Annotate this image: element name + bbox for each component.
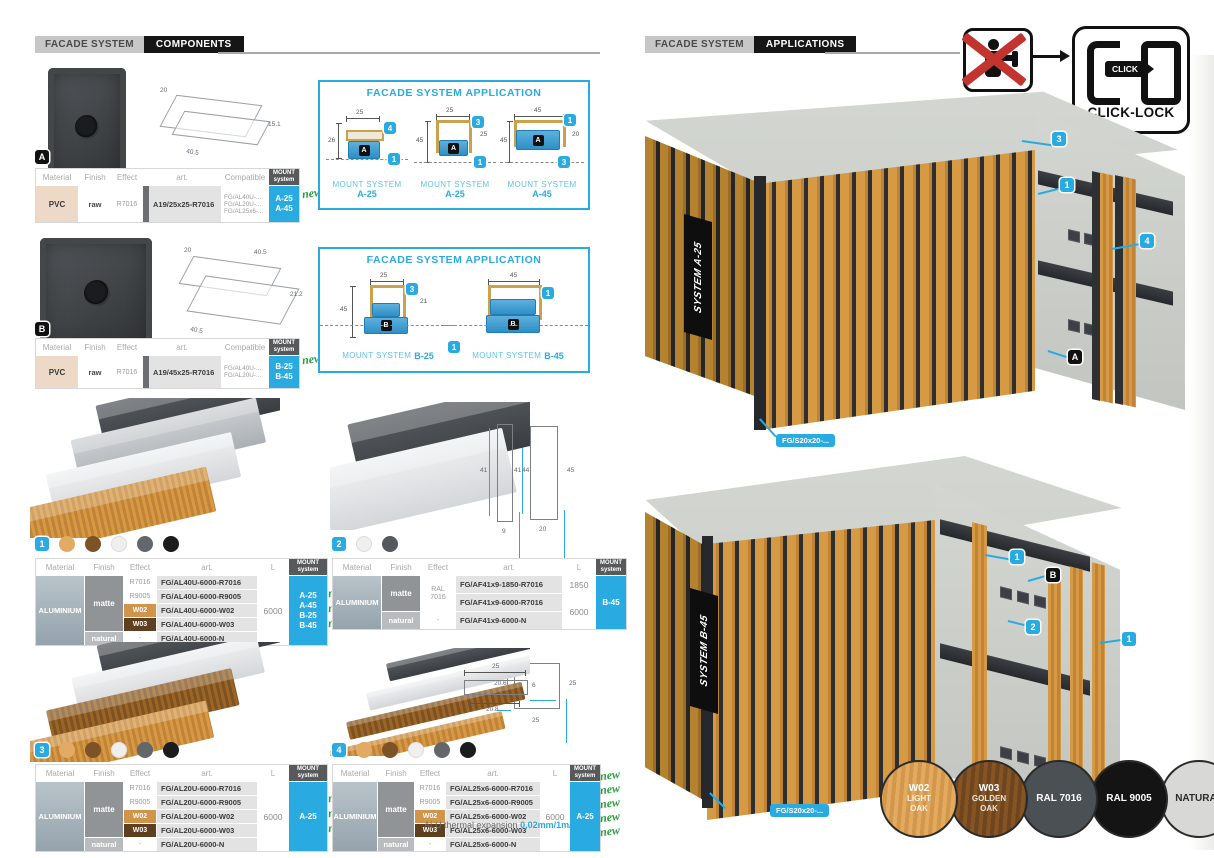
cell-material: PVC — [36, 186, 78, 222]
cell-effect: R7016 — [124, 576, 156, 589]
cell-length: 1850 — [563, 576, 595, 593]
mount-block: B — [486, 315, 540, 333]
cell-art: A19/25x25-R7016 — [143, 186, 221, 222]
color-swatch-row: W02 LIGHT OAK W03 GOLDEN OAK RAL 7016 RA… — [880, 760, 1214, 838]
cell-mount: A-25A-45 B-25B-45 — [289, 576, 327, 645]
dim-width: 20 — [539, 527, 546, 534]
color-dot — [85, 536, 101, 552]
application-render-a25: SYSTEM A-25 3 1 4 A FG/S20x20-... — [640, 88, 1200, 452]
system-plaque-label: SYSTEM B-45 — [699, 614, 710, 688]
appA-drawing-2: 25 45 25 3 A 1 — [414, 108, 496, 180]
mount-block-upper — [372, 303, 400, 317]
profile-outline — [464, 680, 528, 695]
color-dot — [356, 536, 372, 552]
col-length: L — [258, 765, 288, 781]
component-b-dim-h: 21.2 — [290, 292, 303, 299]
dim-right: 25 — [480, 132, 487, 139]
dim-left: 45 — [500, 138, 507, 145]
col-art: art. — [446, 765, 540, 781]
col-material: Material — [36, 765, 84, 781]
dim-top: 45 — [534, 108, 541, 115]
dim-inner: 20.8 — [486, 707, 499, 714]
profile-1-table: Material Finish Effect art. L MOUNTsyste… — [35, 558, 328, 646]
dim-line — [470, 703, 520, 704]
cell-material: ALUMINIUM — [333, 782, 377, 851]
dim-right: 20 — [572, 132, 579, 139]
callout-badge: 3 — [406, 283, 418, 295]
cell-art: FG/AF41x9-6000-R7016 — [456, 594, 562, 611]
col-effect: Effect — [112, 169, 142, 185]
color-dot — [59, 536, 75, 552]
component-b-hole — [84, 280, 110, 306]
color-dot — [460, 742, 476, 758]
col-effect: Effect — [124, 765, 156, 781]
note-value: 0,02mm/1m/1°C — [520, 820, 587, 830]
col-finish: Finish — [382, 559, 420, 575]
cell-art: FG/AL20U-6000-N — [157, 838, 257, 851]
swatch-ral7016: RAL 7016 — [1020, 760, 1098, 838]
detached-slat-backing — [1115, 175, 1123, 405]
component-a-hole — [75, 115, 99, 139]
cell-effect: W02 — [124, 810, 156, 823]
cell-art: FG/AF41x9-6000-N — [456, 612, 562, 629]
cell-finish: raw — [79, 356, 111, 388]
cell-finish: raw — [79, 186, 111, 222]
col-material: Material — [333, 765, 377, 781]
mount-system-label: MOUNT SYSTEM — [414, 180, 496, 189]
col-effect: Effect — [415, 765, 445, 781]
component-b-dim-d2: 40.5 — [190, 327, 204, 336]
callout-badge: 4 — [384, 122, 396, 134]
component-b-dim-w: 20 — [184, 248, 191, 255]
color-dot — [163, 742, 179, 758]
color-dot — [111, 742, 127, 758]
dim-line — [488, 281, 540, 282]
mount-block: A — [439, 140, 468, 156]
drill-body — [1012, 51, 1018, 67]
profile-1-photo — [30, 398, 280, 538]
callout-badge: 1 — [1060, 178, 1074, 192]
cell-effect: - — [124, 838, 156, 851]
part-label: FG/S20x20-... — [776, 434, 835, 447]
cell-finish-natural: natural — [382, 612, 420, 629]
mount-system-code: A-25 — [326, 189, 408, 199]
callout-badge: 1 — [1010, 550, 1024, 564]
note-text: ALU thermal expansion — [424, 820, 520, 830]
swatch-w02: W02 LIGHT OAK — [880, 760, 958, 838]
cell-art: FG/AL20U-6000-R7016 — [157, 782, 257, 795]
profile-outline — [530, 426, 558, 520]
dim-line — [489, 428, 490, 516]
col-mount: MOUNTsystem — [269, 169, 299, 185]
col-mount: MOUNTsystem — [289, 765, 327, 781]
dim-left: 45 — [340, 307, 347, 314]
cell-mount: A-25 — [570, 782, 600, 851]
color-dot — [137, 536, 153, 552]
profile-4-drawing: 25 6 20.8 — [452, 668, 542, 724]
cell-finish-natural: natural — [85, 838, 123, 851]
component-b-letter-badge: B — [35, 322, 49, 336]
mount-system-code: A-45 — [500, 189, 584, 199]
col-material: Material — [36, 169, 78, 185]
cell-art: FG/AL20U-6000-R9005 — [157, 796, 257, 809]
callout-badge: 1 — [388, 153, 400, 165]
col-compatible: Compatible — [222, 169, 268, 185]
dim-outer: 25 — [569, 681, 576, 688]
left-header: FACADE SYSTEM COMPONENTS — [35, 36, 244, 53]
item-number-badge: 2 — [332, 537, 346, 551]
arrow-head — [1060, 50, 1070, 62]
system-plaque-label: SYSTEM A-25 — [693, 240, 704, 314]
color-dot — [382, 536, 398, 552]
profile-outline — [497, 424, 513, 522]
component-a-dim-d: 40.5 — [186, 149, 200, 157]
appB-mount-label-2: MOUNT SYSTEM B-45 — [456, 351, 580, 361]
profile-1-colors: 1 — [35, 536, 179, 552]
mount-system-label: MOUNT SYSTEM — [326, 180, 408, 189]
dim-line — [514, 116, 564, 117]
cell-effect: - — [415, 838, 445, 851]
cell-finish-matte: matte — [85, 782, 123, 837]
component-b-dim-d1: 40.5 — [254, 250, 267, 257]
component-a-letter-badge: A — [35, 150, 49, 164]
profile-3-colors: 3 — [35, 742, 179, 758]
appA-mount-label-1: MOUNT SYSTEM A-25 — [326, 180, 408, 199]
cell-art: FG/AL25x6-6000-N — [446, 838, 540, 851]
col-art: art. — [456, 559, 562, 575]
cell-mount: B-45 — [596, 576, 626, 629]
component-a-dim-h: 15.1 — [268, 122, 281, 129]
cell-effect: R9005 — [415, 796, 445, 809]
swatch-w03: W03 GOLDEN OAK — [950, 760, 1028, 838]
cell-effect: R9005 — [124, 590, 156, 603]
col-effect: Effect — [124, 559, 156, 575]
color-dot — [434, 742, 450, 758]
component-a-drawing: 20 40.5 15.1 — [150, 82, 280, 162]
appA-mount-label-2: MOUNT SYSTEM A-25 — [414, 180, 496, 199]
col-art: art. — [157, 765, 257, 781]
col-length: L — [258, 559, 288, 575]
new-flag: new — [599, 823, 621, 840]
color-dot — [163, 536, 179, 552]
color-dot — [59, 742, 75, 758]
dim-top: 25 — [356, 110, 363, 117]
callout-badge: 4 — [1140, 234, 1154, 248]
application-box-a: FACADE SYSTEM APPLICATION 25 26 6 4 A 1 … — [318, 80, 590, 210]
right-brand-label: FACADE SYSTEM — [645, 36, 754, 53]
mount-letter: A — [359, 145, 370, 156]
cell-length: 6000 — [258, 576, 288, 645]
application-box-b: FACADE SYSTEM APPLICATION 25 45 21 3 B 4… — [318, 247, 590, 373]
col-length: L — [563, 559, 595, 575]
col-length: L — [541, 765, 569, 781]
component-b-wire-body — [186, 275, 299, 324]
application-box-b-title: FACADE SYSTEM APPLICATION — [320, 254, 588, 266]
dim-left: 45 — [416, 138, 423, 145]
cell-finish-matte: matte — [382, 576, 420, 611]
cell-length: 6000 — [258, 782, 288, 851]
slat-wall-front — [760, 150, 1035, 430]
dim-outer: 44 — [522, 468, 529, 475]
cell-art: FG/AL20U-6000-W03 — [157, 824, 257, 837]
col-material: Material — [36, 559, 84, 575]
cell-finish-natural: natural — [378, 838, 414, 851]
dash-line — [444, 325, 588, 326]
dim-line — [566, 699, 567, 743]
cell-effect: R7016 — [124, 782, 156, 795]
col-compatible: Compatible — [222, 339, 268, 355]
profile-2-table: Material Finish Effect art. L MOUNTsyste… — [332, 558, 627, 630]
mount-system-code: A-25 — [414, 189, 496, 199]
dim-line — [338, 123, 339, 159]
callout-badge: 1 — [1122, 632, 1136, 646]
profile-2-drawing: 41 44 9 — [475, 418, 531, 536]
dim-top: 25 — [446, 108, 453, 115]
cell-effect: R7016 — [415, 782, 445, 795]
right-section-label: APPLICATIONS — [754, 36, 857, 53]
profile-4-colors: 4 — [332, 742, 476, 758]
appB-drawing-1: 25 45 21 3 B — [334, 273, 444, 347]
appB-drawing-2: 45 1 B — [460, 273, 574, 347]
dim-line — [464, 672, 526, 673]
cell-length: 6000 — [563, 594, 595, 629]
catalog-page: FACADE SYSTEM COMPONENTS 20 40.5 15.1 A … — [0, 0, 1214, 858]
cell-finish-matte: matte — [85, 576, 123, 631]
cell-art: FG/AL25x6-6000-R7016 — [446, 782, 540, 795]
cell-material: ALUMINIUM — [36, 576, 84, 645]
callout-badge: 2 — [1026, 620, 1040, 634]
component-a-table: Material Finish Effect art. Compatible M… — [35, 168, 300, 223]
item-number-badge: 4 — [332, 743, 346, 757]
appA-drawing-1: 25 26 6 4 A 1 — [326, 108, 408, 180]
dim-top: 25 — [380, 273, 387, 280]
dim-right: 21 — [420, 299, 427, 306]
dim-line — [436, 116, 470, 117]
dim-outer: 45 — [567, 468, 574, 475]
person-head — [988, 39, 999, 50]
component-a-dim-w: 20 — [160, 88, 167, 95]
mount-system-code: B-45 — [544, 351, 564, 361]
col-finish: Finish — [79, 339, 111, 355]
dim-line — [509, 121, 510, 163]
cell-length: 6000 — [541, 782, 569, 851]
callout-badge: 3 — [472, 116, 484, 128]
col-material: Material — [333, 559, 381, 575]
appB-mount-label-1: MOUNT SYSTEM B-25 — [326, 351, 450, 361]
arrow-line — [1032, 55, 1062, 58]
col-art: art. — [143, 339, 221, 355]
color-dot — [356, 742, 372, 758]
cell-compatible: FG/AL40U-... FG/AL20U-... — [222, 356, 268, 388]
system-plaque: SYSTEM A-25 — [684, 214, 712, 340]
color-dot — [382, 742, 398, 758]
dim-inner: 41 — [480, 468, 487, 475]
swatch-ral9005: RAL 9005 — [1090, 760, 1168, 838]
mount-system-label: MOUNT SYSTEM — [500, 180, 584, 189]
cell-art: FG/AL40U-6000-W02 — [157, 604, 257, 617]
cell-material: ALUMINIUM — [36, 782, 84, 851]
mount-system-code: B-25 — [414, 351, 434, 361]
dim-left: 26 — [328, 138, 335, 145]
dash-line — [320, 325, 454, 326]
cell-effect: W03 — [124, 618, 156, 631]
cell-effect: RAL7016 — [421, 576, 455, 611]
mount-block: A — [348, 141, 380, 159]
profile-4-table: Material Finish Effect art. L MOUNTsyste… — [332, 764, 601, 852]
cell-art: A19/45x25-R7016 — [143, 356, 221, 388]
color-dot — [408, 742, 424, 758]
slat-profile — [346, 130, 384, 141]
cell-material: PVC — [36, 356, 78, 388]
appA-mount-label-3: MOUNT SYSTEM A-45 — [500, 180, 584, 199]
appA-drawing-3: 45 45 20 1 A 3 — [500, 108, 584, 180]
dim-line — [346, 118, 380, 119]
mount-system-label: MOUNT SYSTEM — [342, 351, 411, 361]
col-finish: Finish — [378, 765, 414, 781]
component-b-table: Material Finish Effect art. Compatible M… — [35, 338, 300, 389]
mount-system-label: MOUNT SYSTEM — [472, 351, 541, 361]
col-art: art. — [157, 559, 257, 575]
click-arrow-icon — [1145, 62, 1154, 76]
col-mount: MOUNTsystem — [269, 339, 299, 355]
detached-slat — [1100, 172, 1113, 403]
dim-line — [352, 286, 353, 338]
cell-art: FG/AL25x6-6000-R9005 — [446, 796, 540, 809]
callout-badge: 1 — [542, 287, 554, 299]
col-effect: Effect — [112, 339, 142, 355]
no-drill-icon — [963, 28, 1033, 92]
col-finish: Finish — [85, 559, 123, 575]
col-art: art. — [143, 169, 221, 185]
application-render-b45: SYSTEM B-45 1 B 2 1 FG/S20x20-... W02 LI… — [640, 452, 1200, 852]
profile-2-colors: 2 — [332, 536, 398, 552]
callout-badge: 1 — [474, 156, 486, 168]
item-number-badge: 1 — [35, 537, 49, 551]
item-number-badge: 3 — [35, 743, 49, 757]
col-mount: MOUNTsystem — [596, 559, 626, 575]
profile-3-table: Material Finish Effect art. L MOUNTsyste… — [35, 764, 328, 852]
cell-finish-matte: matte — [378, 782, 414, 837]
cell-art: FG/AL40U-6000-W03 — [157, 618, 257, 631]
cell-compatible: FG/AL40U-... FG/AL20U-... FG/AL25x6-... — [222, 186, 268, 222]
col-mount: MOUNTsystem — [570, 765, 600, 781]
mount-block: A — [516, 130, 560, 150]
cell-art: FG/AL40U-6000-R9005 — [157, 590, 257, 603]
dim-line — [370, 281, 404, 282]
cell-mount: A-25 — [289, 782, 327, 851]
col-finish: Finish — [79, 169, 111, 185]
left-header-rule — [218, 52, 600, 54]
mount-block-upper — [490, 299, 536, 315]
color-dot — [111, 536, 127, 552]
cell-effect: - — [421, 612, 455, 629]
mount-letter: B — [508, 319, 519, 330]
cell-mount: B-25B-45 — [269, 356, 299, 388]
right-header-rule — [825, 52, 960, 54]
cell-effect: W03 — [124, 824, 156, 837]
dim-top: 25 — [492, 664, 499, 671]
cell-effect: R9005 — [124, 796, 156, 809]
mount-letter: A — [533, 135, 544, 146]
component-b-photo — [40, 238, 152, 350]
thermal-expansion-note: ALU thermal expansion 0,02mm/1m/1°C — [424, 820, 587, 830]
cell-art: FG/AL40U-6000-R7016 — [157, 576, 257, 589]
cell-effect: W02 — [124, 604, 156, 617]
part-label: FG/S20x20-... — [770, 804, 829, 817]
system-plaque: SYSTEM B-45 — [690, 588, 718, 714]
col-mount: MOUNTsystem — [289, 559, 327, 575]
cell-effect: R7016 — [112, 186, 142, 222]
color-dot — [137, 742, 153, 758]
cell-effect: R7016 — [112, 356, 142, 388]
application-box-a-title: FACADE SYSTEM APPLICATION — [320, 87, 588, 99]
dim-line — [427, 121, 428, 163]
col-effect: Effect — [421, 559, 455, 575]
dash-line — [500, 162, 584, 163]
cell-art: FG/AF41x9-1850-R7016 — [456, 576, 562, 593]
left-section-label: COMPONENTS — [144, 36, 244, 53]
cell-mount: A-25A-45 — [269, 186, 299, 222]
detached-slat-backing — [1092, 171, 1100, 401]
col-material: Material — [36, 339, 78, 355]
dim-width: 9 — [502, 529, 506, 536]
callout-badge: 3 — [1052, 132, 1066, 146]
corner-profile — [754, 176, 766, 430]
dim-top: 45 — [510, 273, 517, 280]
detached-slat — [1123, 176, 1136, 407]
callout-badge: 1 — [564, 114, 576, 126]
callout-letter-badge: A — [1068, 350, 1082, 364]
component-b-drawing: 20 40.5 21.2 40.5 — [162, 246, 307, 341]
callout-badge: 3 — [558, 156, 570, 168]
callout-letter-badge: B — [1046, 568, 1060, 582]
col-finish: Finish — [85, 765, 123, 781]
click-pill: CLICK — [1105, 61, 1145, 77]
cell-material: ALUMINIUM — [333, 576, 381, 629]
color-dot — [85, 742, 101, 758]
cell-art: FG/AL20U-6000-W02 — [157, 810, 257, 823]
right-header: FACADE SYSTEM APPLICATIONS — [645, 36, 856, 53]
swatch-natural: NATURAL — [1160, 760, 1214, 838]
mount-letter: A — [448, 143, 459, 154]
left-brand-label: FACADE SYSTEM — [35, 36, 144, 53]
dim-height: 6 — [532, 683, 536, 690]
